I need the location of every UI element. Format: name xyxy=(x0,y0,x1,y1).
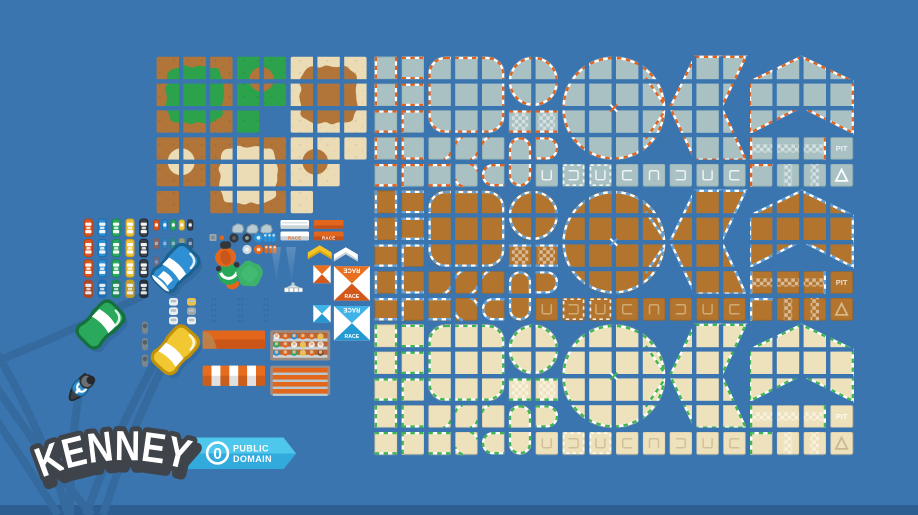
svg-text:RACE: RACE xyxy=(288,236,301,241)
svg-text:0: 0 xyxy=(213,446,222,463)
svg-text:PUBLIC: PUBLIC xyxy=(233,444,269,454)
svg-text:DOMAIN: DOMAIN xyxy=(233,454,272,464)
svg-text:RACE: RACE xyxy=(345,294,360,300)
svg-text:RACE: RACE xyxy=(345,334,360,340)
svg-text:RACE: RACE xyxy=(322,235,335,240)
svg-text:PIT: PIT xyxy=(836,412,848,421)
svg-text:PIT: PIT xyxy=(836,278,848,287)
svg-text:RACE: RACE xyxy=(343,266,360,272)
svg-text:RACE: RACE xyxy=(343,306,360,312)
svg-text:PIT: PIT xyxy=(836,144,848,153)
